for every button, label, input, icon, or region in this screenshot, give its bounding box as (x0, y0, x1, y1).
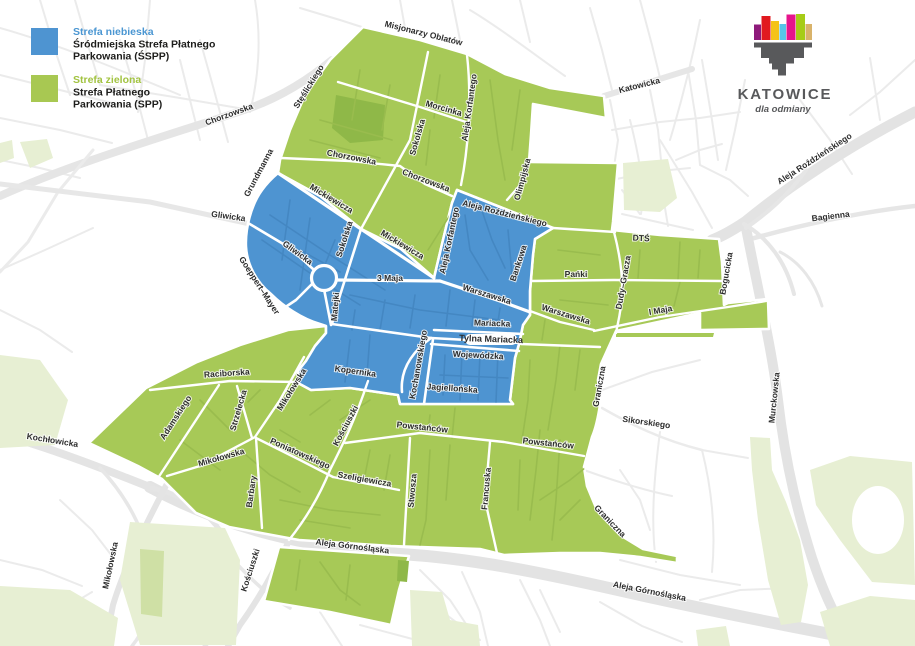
svg-text:Mariacka: Mariacka (474, 317, 511, 328)
svg-text:Parkowania (ŚSPP): Parkowania (ŚSPP) (73, 50, 169, 63)
svg-text:Strefa Płatnego: Strefa Płatnego (73, 87, 150, 99)
svg-text:Strefa niebieska: Strefa niebieska (73, 26, 154, 38)
svg-text:Śródmiejska Strefa Płatnego: Śródmiejska Strefa Płatnego (73, 38, 215, 51)
svg-text:Strefa zielona: Strefa zielona (73, 74, 141, 86)
svg-text:DTŚ: DTŚ (632, 232, 650, 244)
svg-text:Pańki: Pańki (565, 269, 588, 279)
svg-text:3 Maja: 3 Maja (377, 273, 403, 283)
svg-text:KATOWICE: KATOWICE (738, 86, 833, 103)
svg-text:Parkowania (SPP): Parkowania (SPP) (73, 99, 162, 111)
svg-text:dla odmiany: dla odmiany (755, 104, 811, 115)
